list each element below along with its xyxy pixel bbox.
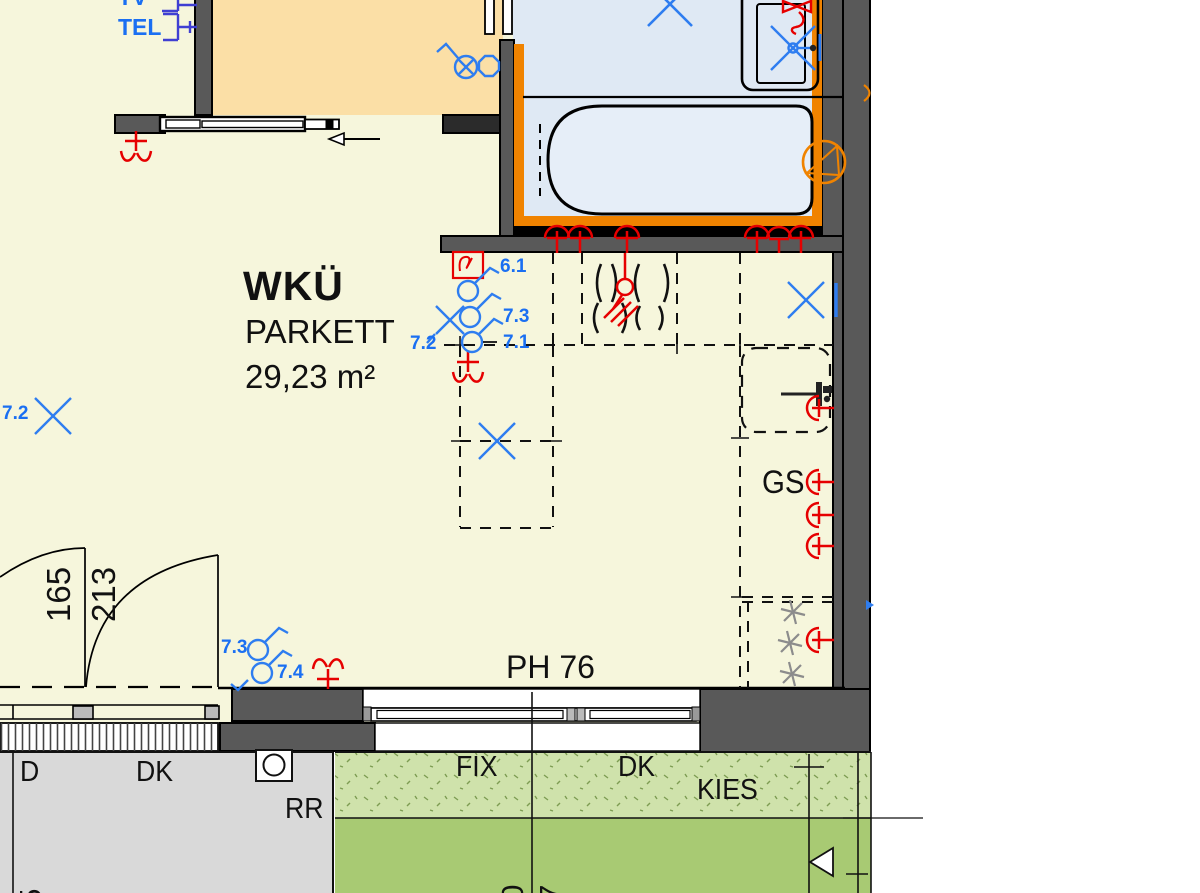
tv-label: TV (118, 0, 147, 9)
parapet-height-label: PH 76 (506, 651, 595, 683)
terrace-door-label: D (20, 758, 39, 787)
dim-10: 10 (497, 849, 528, 893)
circuit-label-7-4: 7.4 (277, 663, 303, 682)
window-dk-label: DK (618, 753, 655, 782)
floor-plan: TV TEL WKÜ PARKETT 29,23 m² 7.2 6.1 7.3 … (0, 0, 1200, 893)
circuit-label-7-2b: 7.2 (410, 334, 436, 353)
circuit-label-7-3: 7.3 (503, 307, 529, 326)
gravel-label: KIES (697, 776, 758, 805)
tel-label: TEL (118, 16, 161, 39)
rain-pipe-label: RR (285, 795, 324, 824)
bathtub-icon (548, 106, 812, 214)
room-floor-type: PARKETT (245, 315, 395, 348)
circuit-label-7-1: 7.1 (503, 333, 529, 352)
terrace-dk-label: DK (136, 758, 173, 787)
rain-pipe-icon (256, 750, 292, 781)
dim-5: 5 (818, 884, 849, 893)
dim-47: 47 (535, 849, 566, 893)
room-area: 29,23 m² (245, 360, 375, 393)
dim-25: 25 (15, 853, 46, 893)
floor-plan-graphics (0, 0, 1200, 893)
dishwasher-label: GS (762, 466, 805, 498)
dim-165: 165 (42, 550, 75, 622)
circuit-label-6-1: 6.1 (500, 257, 526, 276)
circuit-label-7-2: 7.2 (2, 404, 28, 423)
room-name: WKÜ (243, 266, 344, 307)
window-fix-label: FIX (456, 753, 498, 782)
circuit-label-7-3b: 7.3 (221, 638, 247, 657)
dim-213: 213 (87, 550, 120, 622)
